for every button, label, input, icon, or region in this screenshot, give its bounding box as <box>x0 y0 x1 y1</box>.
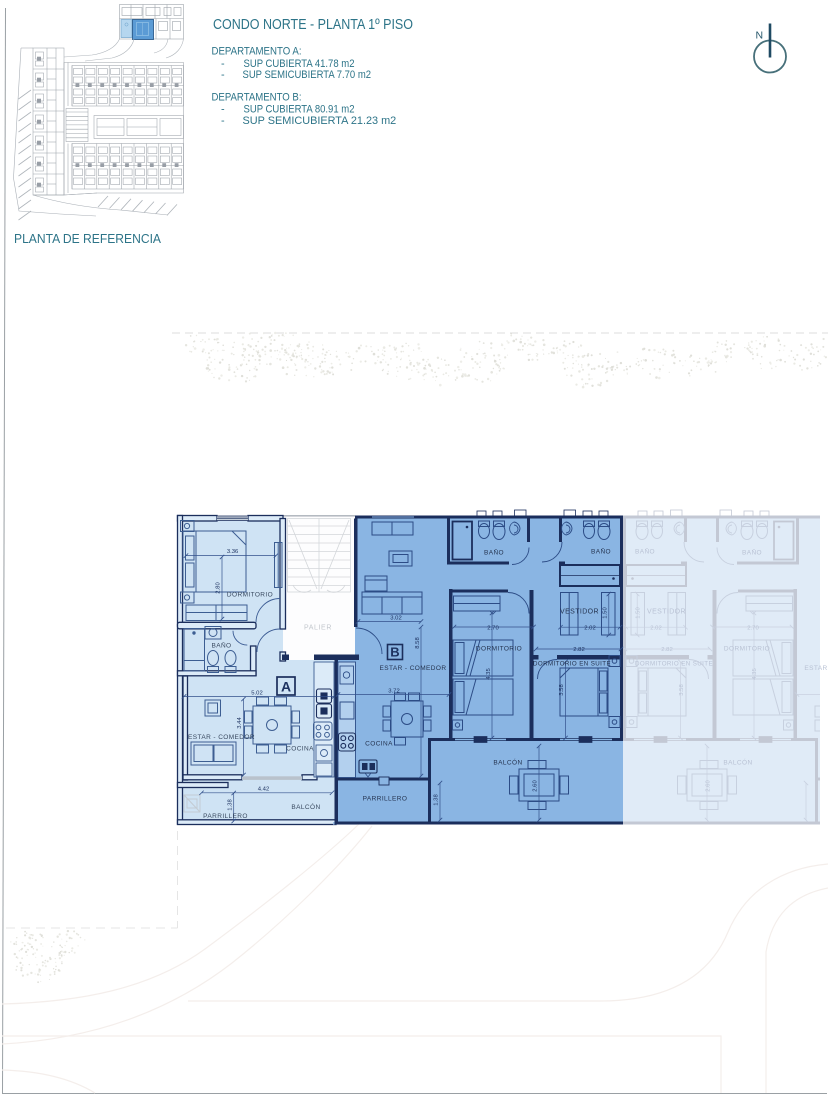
svg-text:2.70: 2.70 <box>747 625 759 631</box>
svg-text:5.02: 5.02 <box>251 690 262 696</box>
svg-text:DEPARTAMENTO A:: DEPARTAMENTO A: <box>212 46 302 58</box>
svg-text:DORMITORIO: DORMITORIO <box>724 645 770 652</box>
svg-text:DORMITORIO: DORMITORIO <box>227 592 273 599</box>
svg-text:BAÑO: BAÑO <box>211 641 231 650</box>
svg-text:ESTAR - C: ESTAR - C <box>804 665 828 672</box>
svg-text:3.36: 3.36 <box>227 549 239 555</box>
svg-text:3.72: 3.72 <box>388 689 399 695</box>
svg-text:SUP SEMICUBIERTA 7.70 m2: SUP SEMICUBIERTA 7.70 m2 <box>243 69 372 81</box>
svg-text:2.82: 2.82 <box>573 647 584 653</box>
svg-text:3.02: 3.02 <box>390 615 401 621</box>
svg-text:1.50: 1.50 <box>603 607 609 619</box>
svg-text:COCINA: COCINA <box>365 741 393 748</box>
svg-text:PARRILLERO: PARRILLERO <box>203 813 248 820</box>
svg-text:1.38: 1.38 <box>434 794 440 806</box>
svg-text:A: A <box>281 679 291 695</box>
svg-text:1.38: 1.38 <box>227 799 233 811</box>
svg-text:2.82: 2.82 <box>661 647 672 653</box>
svg-text:BAÑO: BAÑO <box>484 548 504 557</box>
svg-text:BALCÓN: BALCÓN <box>493 758 522 767</box>
svg-text:PLANTA DE REFERENCIA: PLANTA DE REFERENCIA <box>14 231 161 246</box>
svg-text:-: - <box>221 115 225 127</box>
svg-text:VESTIDOR: VESTIDOR <box>560 609 599 616</box>
svg-text:PALIER: PALIER <box>304 625 332 632</box>
svg-text:SUP CUBIERTA 80.91 m2: SUP CUBIERTA 80.91 m2 <box>244 104 355 116</box>
svg-text:1.50: 1.50 <box>635 607 641 619</box>
svg-text:COCINA: COCINA <box>286 746 314 753</box>
svg-text:2.02: 2.02 <box>650 625 661 631</box>
svg-text:2.70: 2.70 <box>487 625 499 631</box>
svg-text:2.02: 2.02 <box>584 625 595 631</box>
svg-text:4.42: 4.42 <box>258 787 269 793</box>
svg-text:DORMITORIO EN SUITE: DORMITORIO EN SUITE <box>533 660 611 667</box>
svg-text:2.60: 2.60 <box>706 780 712 792</box>
svg-text:DEPARTAMENTO B:: DEPARTAMENTO B: <box>212 92 302 104</box>
svg-text:2.80: 2.80 <box>216 582 222 594</box>
svg-text:DORMITORIO EN SUITE: DORMITORIO EN SUITE <box>635 660 713 667</box>
svg-text:4.35: 4.35 <box>486 668 492 680</box>
svg-text:BAÑO: BAÑO <box>635 547 655 556</box>
svg-text:PARRILLERO: PARRILLERO <box>363 796 408 803</box>
svg-text:8.58: 8.58 <box>415 637 421 649</box>
svg-text:ESTAR - COMEDOR: ESTAR - COMEDOR <box>380 665 447 672</box>
svg-text:BAÑO: BAÑO <box>742 548 762 557</box>
svg-text:VESTIDOR: VESTIDOR <box>647 609 686 616</box>
svg-text:-: - <box>221 104 225 116</box>
svg-text:BALCÓN: BALCÓN <box>723 758 752 767</box>
svg-text:3.44: 3.44 <box>237 717 243 729</box>
svg-text:CONDO NORTE - PLANTA 1º PISO: CONDO NORTE - PLANTA 1º PISO <box>213 17 413 33</box>
svg-text:3.58: 3.58 <box>559 684 565 696</box>
svg-text:4.35: 4.35 <box>752 668 758 680</box>
svg-text:ESTAR - COMEDOR: ESTAR - COMEDOR <box>188 734 255 741</box>
svg-text:B: B <box>390 645 399 660</box>
svg-text:-: - <box>221 69 225 81</box>
svg-text:SUP SEMICUBIERTA 21.23 m2: SUP SEMICUBIERTA 21.23 m2 <box>243 115 397 127</box>
svg-text:2.60: 2.60 <box>533 780 539 792</box>
svg-text:BAÑO: BAÑO <box>591 547 611 556</box>
svg-text:DORMITORIO: DORMITORIO <box>476 645 522 652</box>
svg-text:BALCÓN: BALCÓN <box>291 802 320 811</box>
svg-text:3.58: 3.58 <box>679 684 685 696</box>
svg-text:N: N <box>756 30 764 42</box>
